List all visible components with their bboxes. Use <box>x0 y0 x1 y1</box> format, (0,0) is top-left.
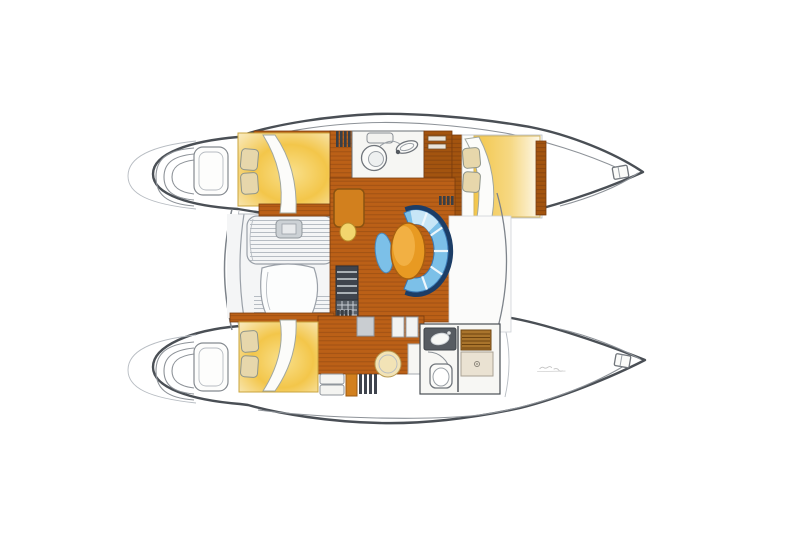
saloon-table-highlight <box>393 226 415 266</box>
stbd-drawer-1 <box>320 374 344 384</box>
stbd-counter-1 <box>392 317 404 337</box>
port-toilet-bowl <box>369 152 384 167</box>
port-head <box>352 131 424 179</box>
port-fwd-berth-footboard <box>536 141 546 215</box>
nav-stool <box>340 223 356 241</box>
starboard-bow-cleat <box>614 354 631 368</box>
stbd-counter-2 <box>406 317 418 337</box>
port-cabinet-drawer-2 <box>428 144 446 149</box>
stbd-shower-drain-dot <box>476 363 478 365</box>
port-aft-pillow-2 <box>240 172 258 194</box>
stbd-aft-pillow-2 <box>240 355 258 377</box>
port-faucet <box>396 150 400 154</box>
stbd-locker-hatch <box>357 317 374 336</box>
stbd-toilet-bowl <box>433 368 449 386</box>
stbd-drawer-2 <box>320 385 344 395</box>
port-fwd-pillow-1 <box>462 147 481 168</box>
cockpit-locker-hatch-inner <box>282 224 296 234</box>
starboard-head <box>420 324 500 394</box>
catamaran-plan-drawing <box>0 0 800 533</box>
stbd-faucet <box>447 331 451 335</box>
stbd-cabinet <box>346 374 357 396</box>
port-forward-cabin <box>462 135 546 218</box>
port-bow-cleat <box>612 165 629 179</box>
port-aft-pillow-1 <box>240 148 259 170</box>
stbd-aft-pillow-1 <box>240 330 259 352</box>
port-cabinet-drawer-1 <box>428 136 446 141</box>
nav-desk <box>334 189 364 227</box>
floor-plan-figure <box>0 0 800 533</box>
stair-upper <box>336 266 358 300</box>
port-fwd-pillow-2 <box>462 171 480 192</box>
saloon-forward-deck <box>449 216 511 332</box>
cockpit <box>227 213 334 319</box>
stbd-shower-grate <box>461 330 491 350</box>
